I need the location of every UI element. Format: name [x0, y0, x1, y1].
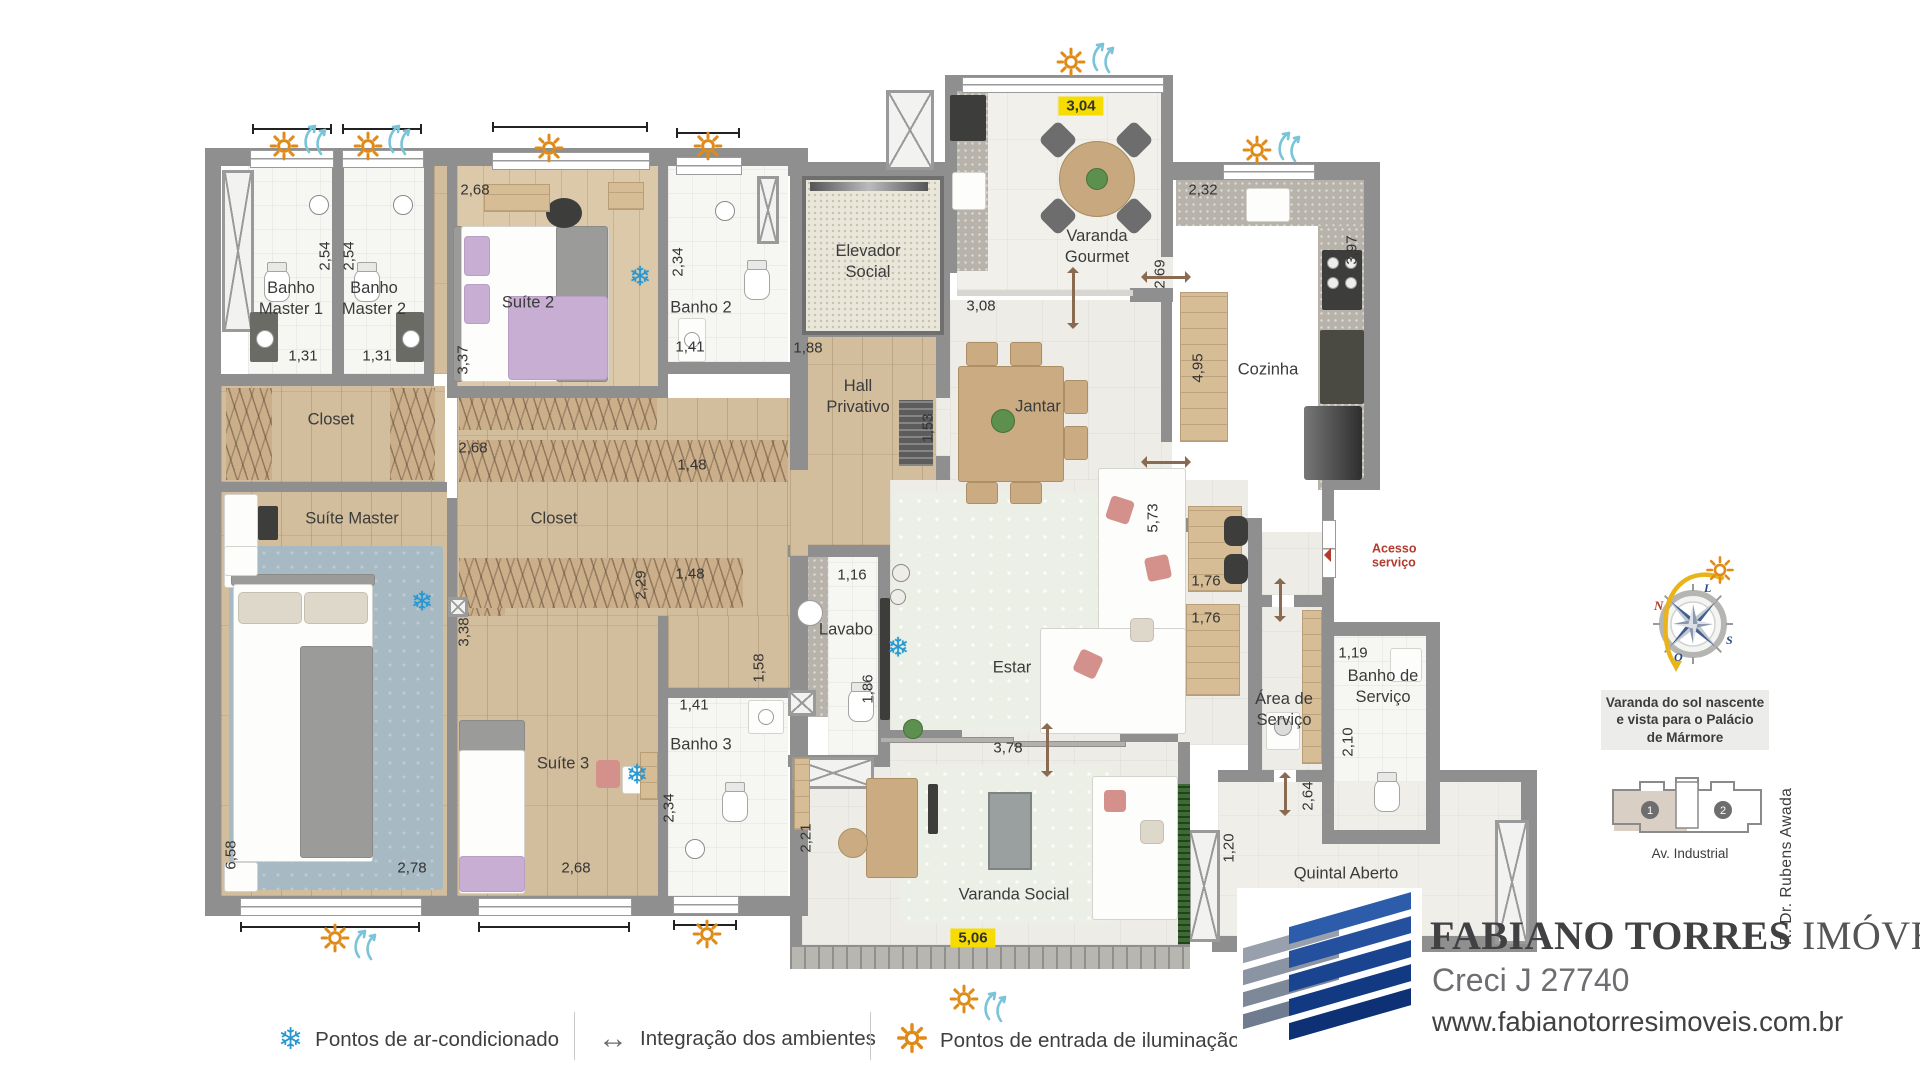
room-label: Suíte 2: [502, 292, 554, 313]
sun-icon: [1242, 135, 1272, 165]
pillow: [459, 720, 525, 752]
integration-arrow: [1144, 276, 1188, 279]
dimension-label: 1,19: [1338, 645, 1367, 662]
door-opening: [790, 470, 808, 556]
dimension-label: 1,76: [1191, 573, 1220, 590]
sun-icon: [692, 919, 722, 949]
chair: [1224, 554, 1248, 584]
pillow: [238, 592, 302, 624]
dimension-label: 1,41: [679, 697, 708, 714]
toilet-tank: [725, 782, 745, 792]
dimension-label: 2,68: [561, 860, 590, 877]
floor-lavabo: [828, 557, 878, 755]
chair: [1224, 516, 1248, 546]
dimension-label: 1,88: [793, 340, 822, 357]
integration-arrow: [1046, 726, 1049, 774]
dimension-label: 3,97: [1344, 235, 1361, 264]
snowflake-icon: ❄: [887, 635, 910, 662]
dimension-label: 1,41: [675, 339, 704, 356]
dresser: [484, 184, 550, 212]
hedge: [1178, 784, 1190, 944]
integration-arrow: [1072, 270, 1075, 326]
plant: [903, 719, 923, 739]
window: [492, 152, 650, 170]
tv: [928, 784, 938, 834]
wall: [447, 386, 668, 398]
dimension-highlight: 3,04: [1058, 97, 1103, 116]
dimension-label: 3,37: [455, 345, 472, 374]
dimension-label: 2,54: [317, 241, 334, 270]
wind-icon: [349, 927, 379, 961]
integration-arrow: [1144, 461, 1188, 464]
side-table: [890, 589, 906, 605]
wall: [1262, 595, 1272, 607]
dimension-label: 1,31: [288, 348, 317, 365]
legend-item-integration: ↔ Integração dos ambientes: [598, 1022, 876, 1056]
burner: [1327, 257, 1339, 269]
basin: [256, 330, 274, 348]
legend-label: Integração dos ambientes: [640, 1027, 876, 1051]
bed-blanket: [459, 856, 525, 892]
svg-text:N: N: [1653, 598, 1664, 613]
shaft: [757, 176, 779, 244]
pillow: [464, 284, 490, 324]
room-label: Elevador Social: [835, 241, 900, 283]
room-label: Banho de Serviço: [1348, 666, 1419, 708]
burner: [1345, 277, 1357, 289]
grill: [950, 95, 986, 141]
shower-head: [309, 195, 329, 215]
toilet-tank: [1377, 772, 1397, 782]
dimension-label: 3,38: [456, 617, 473, 646]
room-label: Banho 3: [670, 734, 731, 755]
toilet: [744, 266, 770, 300]
wall: [332, 166, 344, 378]
pillow: [304, 592, 368, 624]
dimension-label: 3,78: [993, 740, 1022, 757]
room-label: Banho Master 2: [342, 278, 406, 320]
shelf: [608, 182, 644, 210]
wall: [1218, 770, 1274, 782]
dimension-label: 2,29: [633, 570, 650, 599]
wind-icon: [1273, 129, 1303, 163]
wall: [447, 498, 457, 896]
chair: [1064, 426, 1088, 460]
window: [1223, 164, 1315, 180]
shaft: [448, 597, 468, 617]
basin: [402, 330, 420, 348]
wall: [218, 374, 434, 386]
dimension-label: 4,95: [1190, 353, 1207, 382]
room-label: Closet: [531, 508, 578, 529]
snowflake-icon: ❄: [629, 264, 652, 291]
chair: [966, 342, 998, 366]
burner: [1327, 277, 1339, 289]
legend-label: Pontos de entrada de iluminação e ve: [940, 1029, 1284, 1053]
shower-head: [685, 839, 705, 859]
room-label: Quintal Aberto: [1294, 863, 1399, 884]
measure-line: [478, 926, 630, 928]
toilet: [722, 788, 748, 822]
wind-icon: [299, 122, 329, 156]
dimension-highlight: 5,06: [950, 929, 995, 948]
chair: [966, 482, 998, 504]
elevator-door: [810, 182, 928, 191]
double-arrow-icon: ↔: [598, 1022, 628, 1056]
room-label: Hall Privativo: [826, 376, 889, 418]
nightstand: [224, 546, 258, 576]
floor-lobby: [434, 166, 447, 374]
sun-icon: [534, 133, 564, 163]
room-label: Closet: [308, 409, 355, 430]
threshold: [957, 290, 1133, 296]
agency-creci: Creci J 27740: [1432, 962, 1629, 999]
room-label: Banho Master 1: [259, 278, 323, 320]
wall: [205, 148, 221, 916]
wall: [658, 688, 790, 698]
chair: [838, 828, 868, 858]
area-cabinet: [1302, 610, 1322, 764]
wardrobe: [226, 388, 272, 480]
sofa-pillow: [1130, 618, 1154, 642]
dimension-label: 3,08: [966, 298, 995, 315]
oven-tower: [1320, 330, 1364, 404]
wardrobe: [390, 388, 435, 480]
compass-icon: N L S O: [1630, 548, 1780, 680]
dimension-label: 2,34: [670, 247, 687, 276]
dimension-label: 1,16: [837, 567, 866, 584]
svg-text:2: 2: [1720, 805, 1726, 817]
snowflake-icon: ❄: [278, 1022, 303, 1057]
window: [240, 898, 422, 916]
door-opening: [936, 398, 950, 456]
wall: [1248, 530, 1262, 782]
wind-icon: [979, 989, 1009, 1023]
room-label: Jantar: [1015, 396, 1061, 417]
bed-blanket: [300, 646, 373, 858]
window: [673, 896, 739, 914]
integration-arrow: [1284, 775, 1287, 813]
snowflake-icon: ❄: [411, 589, 434, 616]
building-keyplan: 1 2: [1608, 772, 1773, 842]
chair: [1010, 342, 1042, 366]
tv: [258, 506, 278, 540]
sofa-pillow: [1140, 820, 1164, 844]
dimension-label: 1,53: [920, 413, 937, 442]
wall: [1161, 300, 1172, 442]
wind-icon: [1087, 40, 1117, 74]
floor-service-corridor: [1262, 532, 1322, 595]
toilet-tank: [357, 262, 377, 272]
wall: [424, 166, 434, 378]
wind-icon: [383, 122, 413, 156]
room-label: Varanda Social: [959, 884, 1070, 905]
rug: [546, 198, 582, 228]
plant: [991, 409, 1015, 433]
wall: [1426, 622, 1440, 844]
legend-divider: [870, 1012, 871, 1060]
room-label: Suíte 3: [537, 753, 589, 774]
dimension-label: 2,32: [1188, 182, 1217, 199]
side-table: [892, 564, 910, 582]
agency-name-bold: FABIANO TORRES: [1430, 913, 1792, 958]
agency-logo: [1237, 888, 1422, 1080]
room-label: Lavabo: [819, 619, 873, 640]
room-label: Banho 2: [670, 297, 731, 318]
dimension-label: 2,64: [1300, 781, 1317, 810]
wall: [1296, 770, 1322, 782]
dimension-label: 1,48: [677, 457, 706, 474]
sofa-pillow: [1104, 790, 1126, 812]
shaft: [222, 170, 254, 332]
sliding-door: [1014, 741, 1126, 747]
measure-line: [492, 126, 648, 128]
snowflake-icon: ❄: [626, 762, 649, 789]
window: [962, 77, 1164, 93]
dimension-label: 2,54: [341, 241, 358, 270]
svg-text:1: 1: [1647, 805, 1653, 817]
street-label-right: R. Dr. Rubens Awada: [1778, 700, 1796, 945]
sun-icon: [320, 923, 350, 953]
fire-table: [988, 792, 1032, 870]
legend-label: Pontos de ar-condicionado: [315, 1028, 559, 1052]
sun-icon: [693, 131, 723, 161]
dimension-label: 2,21: [798, 823, 815, 852]
integration-arrow: [1279, 581, 1282, 619]
service-access-label: Acesso serviço: [1372, 542, 1416, 571]
svg-text:S: S: [1726, 633, 1733, 647]
dimension-label: 2,68: [460, 182, 489, 199]
dimension-label: 1,20: [1221, 833, 1238, 862]
shaft: [886, 90, 934, 170]
plant: [1086, 168, 1108, 190]
dimension-label: 2,78: [397, 860, 426, 877]
dimension-label: 1,48: [675, 566, 704, 583]
room-label: Área de Serviço: [1255, 689, 1313, 731]
shower-head: [393, 195, 413, 215]
wall: [1364, 162, 1380, 490]
kitchen-sink: [1246, 188, 1290, 222]
wall: [1322, 622, 1440, 636]
wall: [218, 482, 447, 492]
shaft: [788, 690, 816, 716]
desk: [866, 778, 918, 878]
agency-name: FABIANO TORRES IMÓVEIS: [1430, 912, 1920, 959]
dimension-label: 2,10: [1340, 727, 1357, 756]
svg-text:L: L: [1703, 581, 1711, 595]
agency-website: www.fabianotorresimoveis.com.br: [1432, 1006, 1843, 1038]
floorplan-page: Banho Master 1Banho Master 2Suíte 2Banho…: [0, 0, 1920, 1080]
orientation-note: Varanda do sol nascente e vista para o P…: [1601, 690, 1769, 750]
shaft: [1188, 830, 1220, 942]
dimension-label: 1,76: [1191, 610, 1220, 627]
sofa-pillow: [1144, 554, 1172, 582]
room-label: Suíte Master: [305, 508, 399, 529]
sun-icon: [896, 1022, 928, 1060]
varanda-rail: [790, 945, 1190, 969]
dimension-label: 1,86: [860, 674, 877, 703]
cabinet: [794, 758, 810, 830]
wall: [1322, 830, 1440, 844]
basin: [758, 709, 774, 725]
shower-head: [715, 201, 735, 221]
agency-name-light: IMÓVEIS: [1792, 913, 1920, 958]
street-label-bottom: Av. Industrial: [1610, 846, 1770, 861]
chair: [1010, 482, 1042, 504]
dimension-label: 5,73: [1145, 503, 1162, 532]
dimension-label: 2,69: [1152, 259, 1169, 288]
toilet-tank: [747, 260, 767, 270]
window: [478, 898, 632, 916]
pillow: [464, 236, 490, 276]
room-label: Cozinha: [1238, 359, 1299, 380]
sun-icon: [269, 131, 299, 161]
wall: [1294, 595, 1322, 607]
chair: [596, 760, 620, 788]
legend-divider: [574, 1012, 575, 1060]
toilet-tank: [267, 262, 287, 272]
wall: [1322, 636, 1334, 832]
wardrobe: [459, 440, 788, 482]
room-label: Estar: [993, 657, 1032, 678]
wall: [658, 616, 668, 896]
sun-icon: [1056, 47, 1086, 77]
dimension-label: 1,31: [362, 348, 391, 365]
wardrobe: [459, 398, 657, 430]
toilet: [1374, 778, 1400, 812]
wall: [658, 362, 808, 374]
dimension-label: 2,68: [458, 440, 487, 457]
dimension-label: 6,58: [223, 840, 240, 869]
sun-icon: [949, 984, 979, 1014]
floor-corridor: [668, 616, 790, 688]
dimension-label: 2,34: [661, 793, 678, 822]
vg-sink: [952, 172, 986, 210]
legend-item-light: Pontos de entrada de iluminação e ve: [896, 1022, 1284, 1060]
legend-item-ac: ❄ Pontos de ar-condicionado: [278, 1022, 559, 1057]
sun-icon: [353, 131, 383, 161]
svg-text:O: O: [1674, 650, 1683, 664]
chair: [1064, 380, 1088, 414]
fridge: [1304, 406, 1362, 480]
sofa: [1040, 628, 1186, 734]
dimension-label: 1,58: [751, 653, 768, 682]
wall: [1322, 490, 1334, 520]
